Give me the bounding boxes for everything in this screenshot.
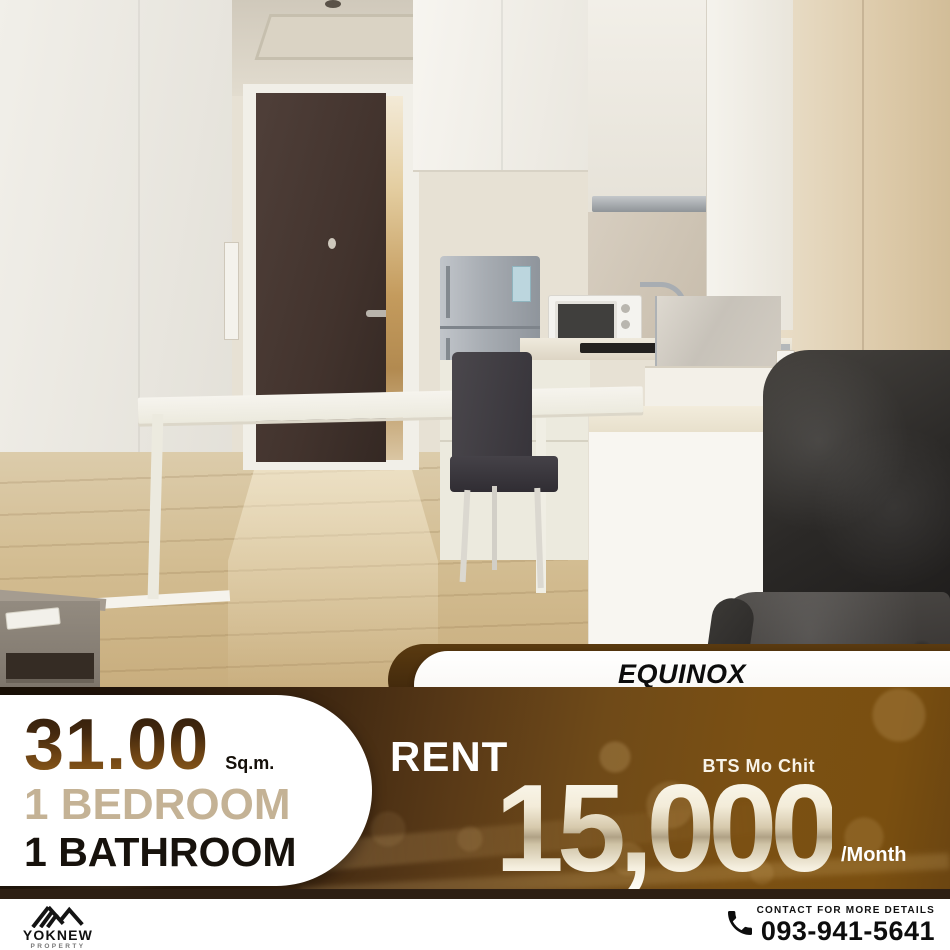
bedroom-count: 1 BEDROOM: [24, 783, 372, 828]
contact-phone-number: 093-941-5641: [675, 917, 935, 945]
dining-chair-seat: [450, 456, 558, 492]
area-row: 31.00 Sq.m.: [24, 709, 372, 781]
area-value: 31.00: [24, 709, 209, 781]
door-peephole: [328, 238, 336, 249]
brand-logo: YOKNEW PROPERTY: [20, 902, 96, 950]
roof-chevrons-icon: [30, 902, 86, 928]
chair-leg: [492, 486, 497, 570]
rent-label: RENT: [390, 736, 508, 778]
sofa-backrest: [763, 350, 950, 612]
glass-partition: [655, 296, 781, 370]
cabinet-seam: [501, 0, 503, 170]
hood-cabinet: [588, 0, 706, 212]
light-switch: [224, 242, 239, 340]
upper-kitchen-cabinets: [413, 0, 588, 172]
fridge-door-split: [440, 326, 540, 329]
fridge-handle: [446, 266, 450, 318]
contact-block: CONTACT FOR MORE DETAILS 093-941-5641: [675, 904, 935, 945]
bathroom-count: 1 BATHROOM: [24, 831, 372, 874]
rent-price: 15,000: [495, 771, 832, 889]
ceiling-downlight: [325, 0, 341, 8]
microwave-knob: [621, 304, 630, 313]
microwave-knob: [621, 320, 630, 329]
tv-cabinet-shelf: [6, 653, 94, 683]
dining-chair-back: [452, 352, 532, 464]
rental-flyer: EQUINOX Phahol - Vibha 31.00 Sq.m. 1 BED…: [0, 0, 950, 950]
brand-subtitle: PROPERTY: [31, 943, 86, 950]
area-unit: Sq.m.: [225, 754, 274, 772]
brand-name: YOKNEW: [23, 928, 93, 943]
price-period: /Month: [841, 845, 907, 865]
unit-specs-panel: 31.00 Sq.m. 1 BEDROOM 1 BATHROOM: [0, 695, 372, 886]
range-hood: [592, 196, 708, 212]
energy-label-sticker: [512, 266, 531, 302]
microwave: [548, 295, 642, 344]
project-name: EQUINOX: [618, 660, 746, 688]
tall-cabinet-column: [706, 0, 793, 330]
microwave-door: [555, 301, 617, 341]
